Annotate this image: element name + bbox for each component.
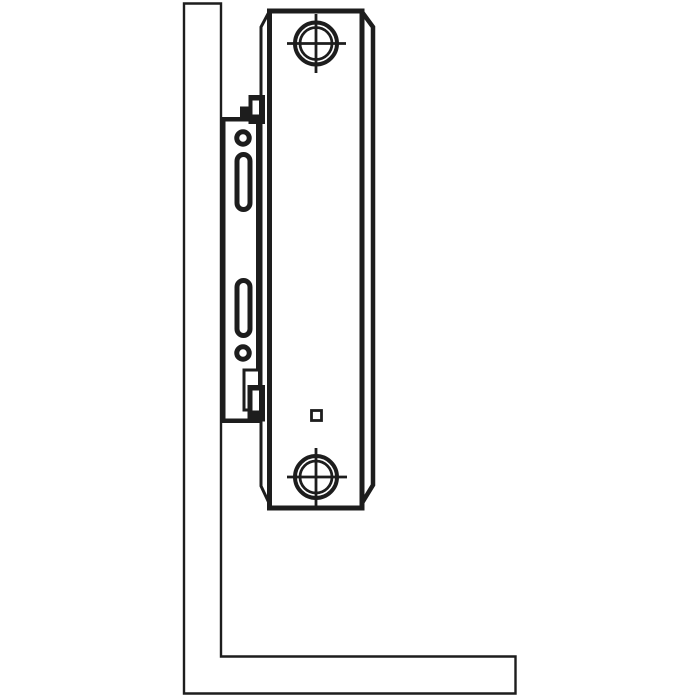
bracket-lower-hook: [248, 385, 266, 422]
bracket-upper-slot: [237, 155, 250, 210]
radiator-square-marker: [312, 411, 322, 421]
radiator-panel: [270, 11, 363, 508]
radiator-installation-diagram: [0, 0, 700, 700]
bracket-lower-hook-slot: [253, 391, 260, 411]
bracket-upper-hook-slot: [253, 101, 260, 115]
bracket-upper-hole: [237, 132, 250, 145]
bracket-upper-hook: [249, 95, 266, 124]
bracket-lower-slot: [237, 281, 250, 336]
bracket-lower-hole: [237, 347, 250, 360]
bracket-top-nub: [240, 107, 249, 119]
